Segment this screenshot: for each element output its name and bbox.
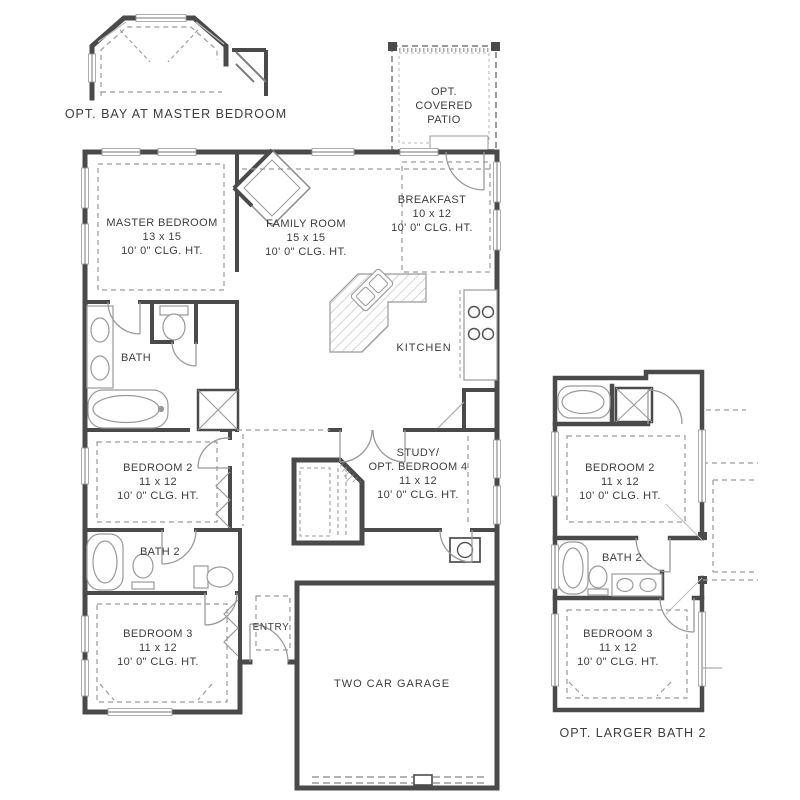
bedroom2-name: BEDROOM 2 [117,461,199,475]
master-bath-fixtures [87,306,188,428]
water-heater [450,538,480,562]
family-room-name: FAMILY ROOM [265,217,347,231]
patio-label-line3: PATIO [415,113,472,127]
inset-bedroom3-clg: 10' 0" CLG. HT. [577,655,659,669]
patio-label: OPT. COVERED PATIO [415,85,472,127]
cooktop-counter [438,290,497,428]
inset-bedroom2-clg: 10' 0" CLG. HT. [579,489,661,503]
inset-bedroom3-size: 11 x 12 [577,641,659,655]
bedroom3-size: 11 x 12 [117,641,199,655]
patio-label-line2: COVERED [415,99,472,113]
room-label-bath2: BATH 2 [140,545,180,559]
master-shower [198,390,238,430]
bath2-fixtures [87,534,233,590]
bedroom3-clg: 10' 0" CLG. HT. [117,655,199,669]
inset-room-label-bath2: BATH 2 [602,551,642,565]
utility-closet [294,460,362,543]
bedroom2-clg: 10' 0" CLG. HT. [117,489,199,503]
inset-door-posts [698,532,707,584]
room-label-study: STUDY/ OPT. BEDROOM 4 11 x 12 10' 0" CLG… [368,446,467,502]
larger-bath-caption: OPT. LARGER BATH 2 [560,726,707,740]
inset-room-label-bedroom3: BEDROOM 3 11 x 12 10' 0" CLG. HT. [577,627,659,669]
bay-detail-caption: OPT. BAY AT MASTER BEDROOM [65,107,287,121]
bedroom3-name: BEDROOM 3 [117,627,199,641]
breakfast-size: 10 x 12 [391,207,473,221]
inset-bedroom2-size: 11 x 12 [579,475,661,489]
room-label-kitchen: KITCHEN [396,341,451,355]
inset-shower [616,388,652,422]
room-label-bedroom3: BEDROOM 3 11 x 12 10' 0" CLG. HT. [117,627,199,669]
master-bedroom-name: MASTER BEDROOM [106,216,217,230]
room-label-entry: ENTRY [253,621,290,635]
master-bedroom-size: 13 x 15 [106,230,217,244]
master-bedroom-clg: 10' 0" CLG. HT. [106,244,217,258]
inset-bedroom2-name: BEDROOM 2 [579,461,661,475]
family-room-size: 15 x 15 [265,231,347,245]
garage-door [312,775,484,785]
room-label-family-room: FAMILY ROOM 15 x 15 10' 0" CLG. HT. [265,217,347,259]
room-label-bath: BATH [121,351,151,365]
fireplace [234,150,310,226]
room-label-bedroom2: BEDROOM 2 11 x 12 10' 0" CLG. HT. [117,461,199,503]
study-name-line2: OPT. BEDROOM 4 [368,460,467,474]
room-label-breakfast: BREAKFAST 10 x 12 10' 0" CLG. HT. [391,193,473,235]
study-size: 11 x 12 [368,474,467,488]
floor-plan: OPT. BAY AT MASTER BEDROOM OPT. COVERED … [0,0,800,800]
breakfast-clg: 10' 0" CLG. HT. [391,221,473,235]
inset-bedroom3-name: BEDROOM 3 [577,627,659,641]
kitchen-island [330,268,426,352]
patio-label-line1: OPT. [415,85,472,99]
study-clg: 10' 0" CLG. HT. [368,488,467,502]
family-room-clg: 10' 0" CLG. HT. [265,245,347,259]
study-name-line1: STUDY/ [368,446,467,460]
inset-room-label-bedroom2: BEDROOM 2 11 x 12 10' 0" CLG. HT. [579,461,661,503]
bay-detail [89,15,267,99]
breakfast-name: BREAKFAST [391,193,473,207]
room-label-garage: TWO CAR GARAGE [334,677,450,691]
room-label-master-bedroom: MASTER BEDROOM 13 x 15 10' 0" CLG. HT. [106,216,217,258]
bedroom2-size: 11 x 12 [117,475,199,489]
